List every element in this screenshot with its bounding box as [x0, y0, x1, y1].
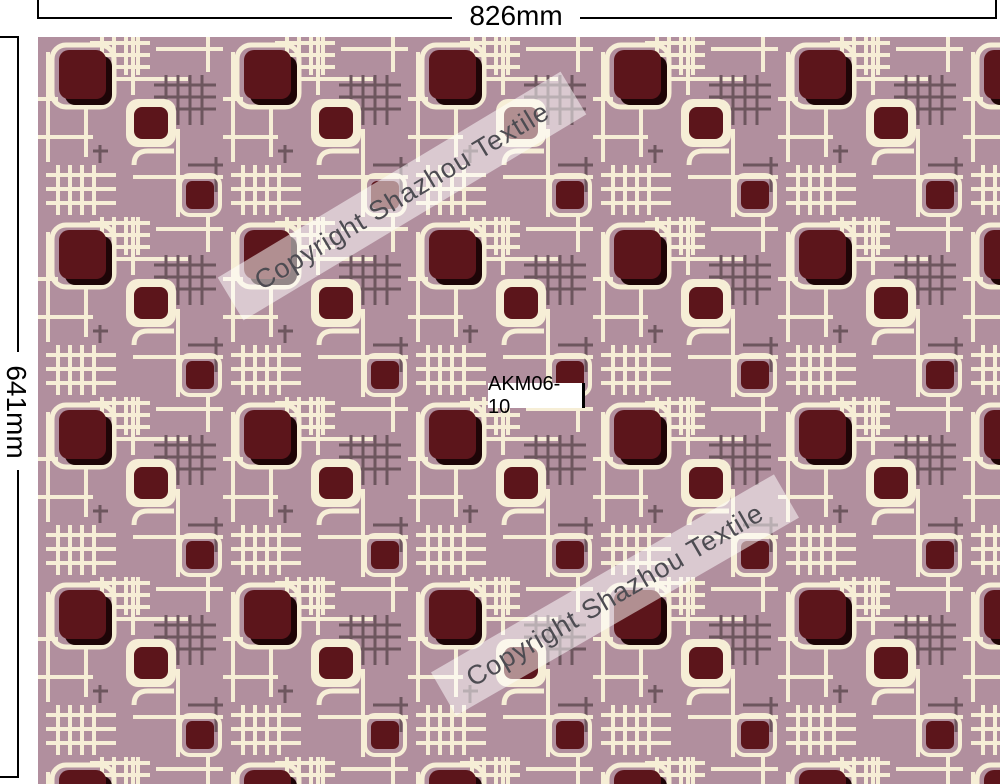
width-label: 826mm: [469, 2, 562, 30]
top-dimension-line-right: [580, 17, 997, 19]
pattern-code-label: AKM06-10: [488, 383, 585, 408]
left-dimension-line-bottom: [17, 470, 19, 778]
textile-pattern-sheet: 826mm 641mm: [0, 0, 1000, 784]
fabric-swatch: Copyright Shazhou Textile Copyright Shaz…: [38, 37, 1000, 784]
left-dimension-line-top: [17, 37, 19, 352]
top-dimension-line-left: [38, 17, 452, 19]
height-label: 641mm: [2, 365, 30, 458]
pattern-code-text: AKM06-10: [488, 373, 582, 419]
